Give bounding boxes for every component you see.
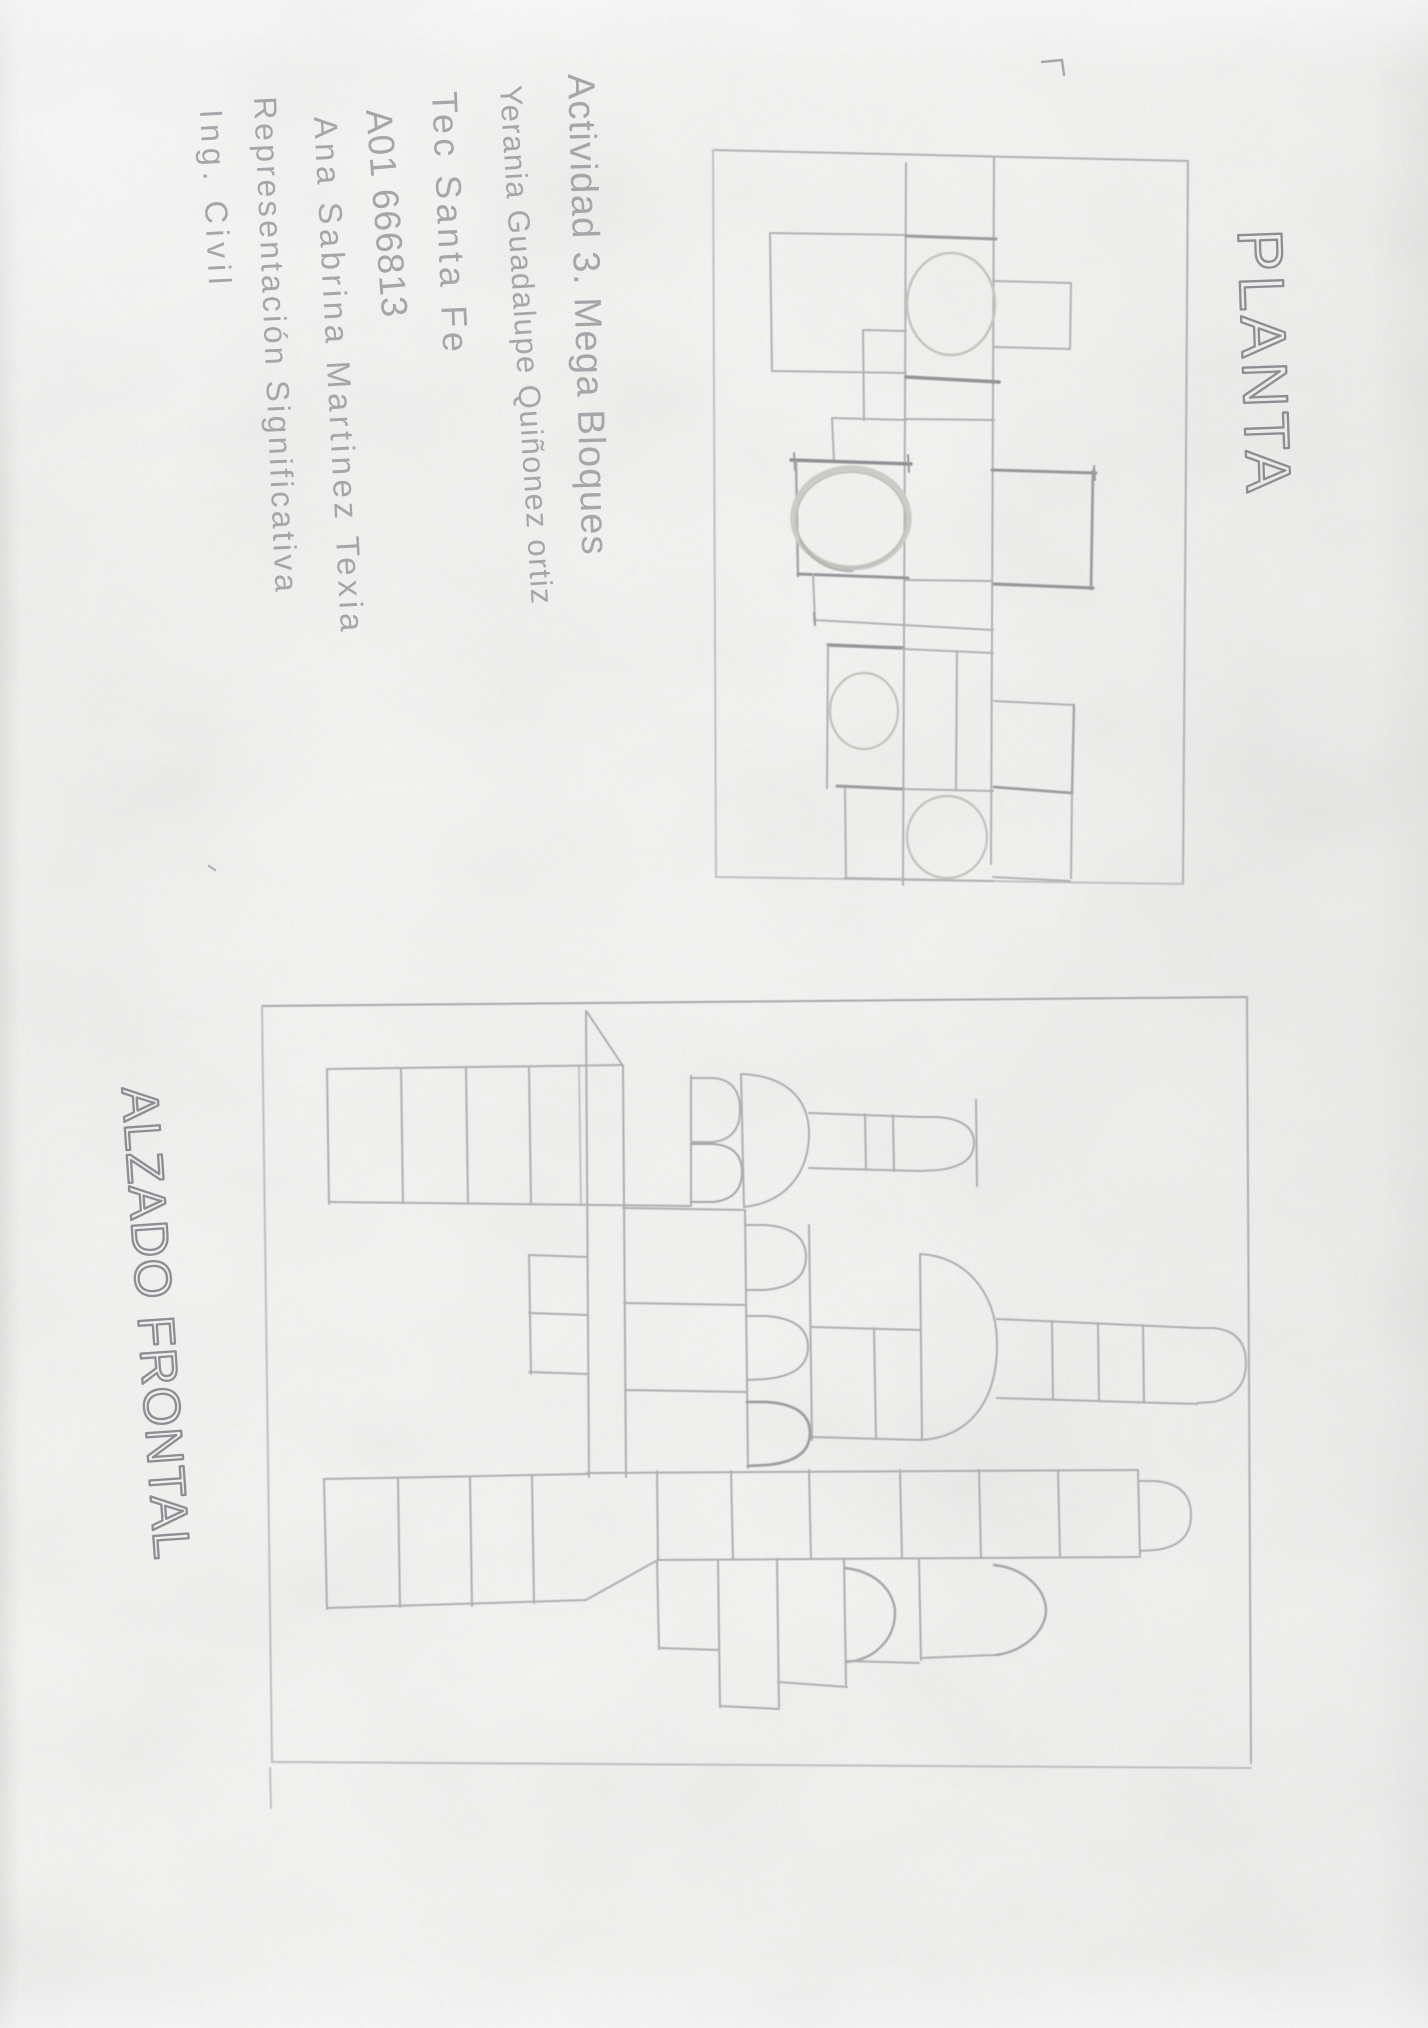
svg-text:PLANTA: PLANTA — [1224, 228, 1303, 498]
